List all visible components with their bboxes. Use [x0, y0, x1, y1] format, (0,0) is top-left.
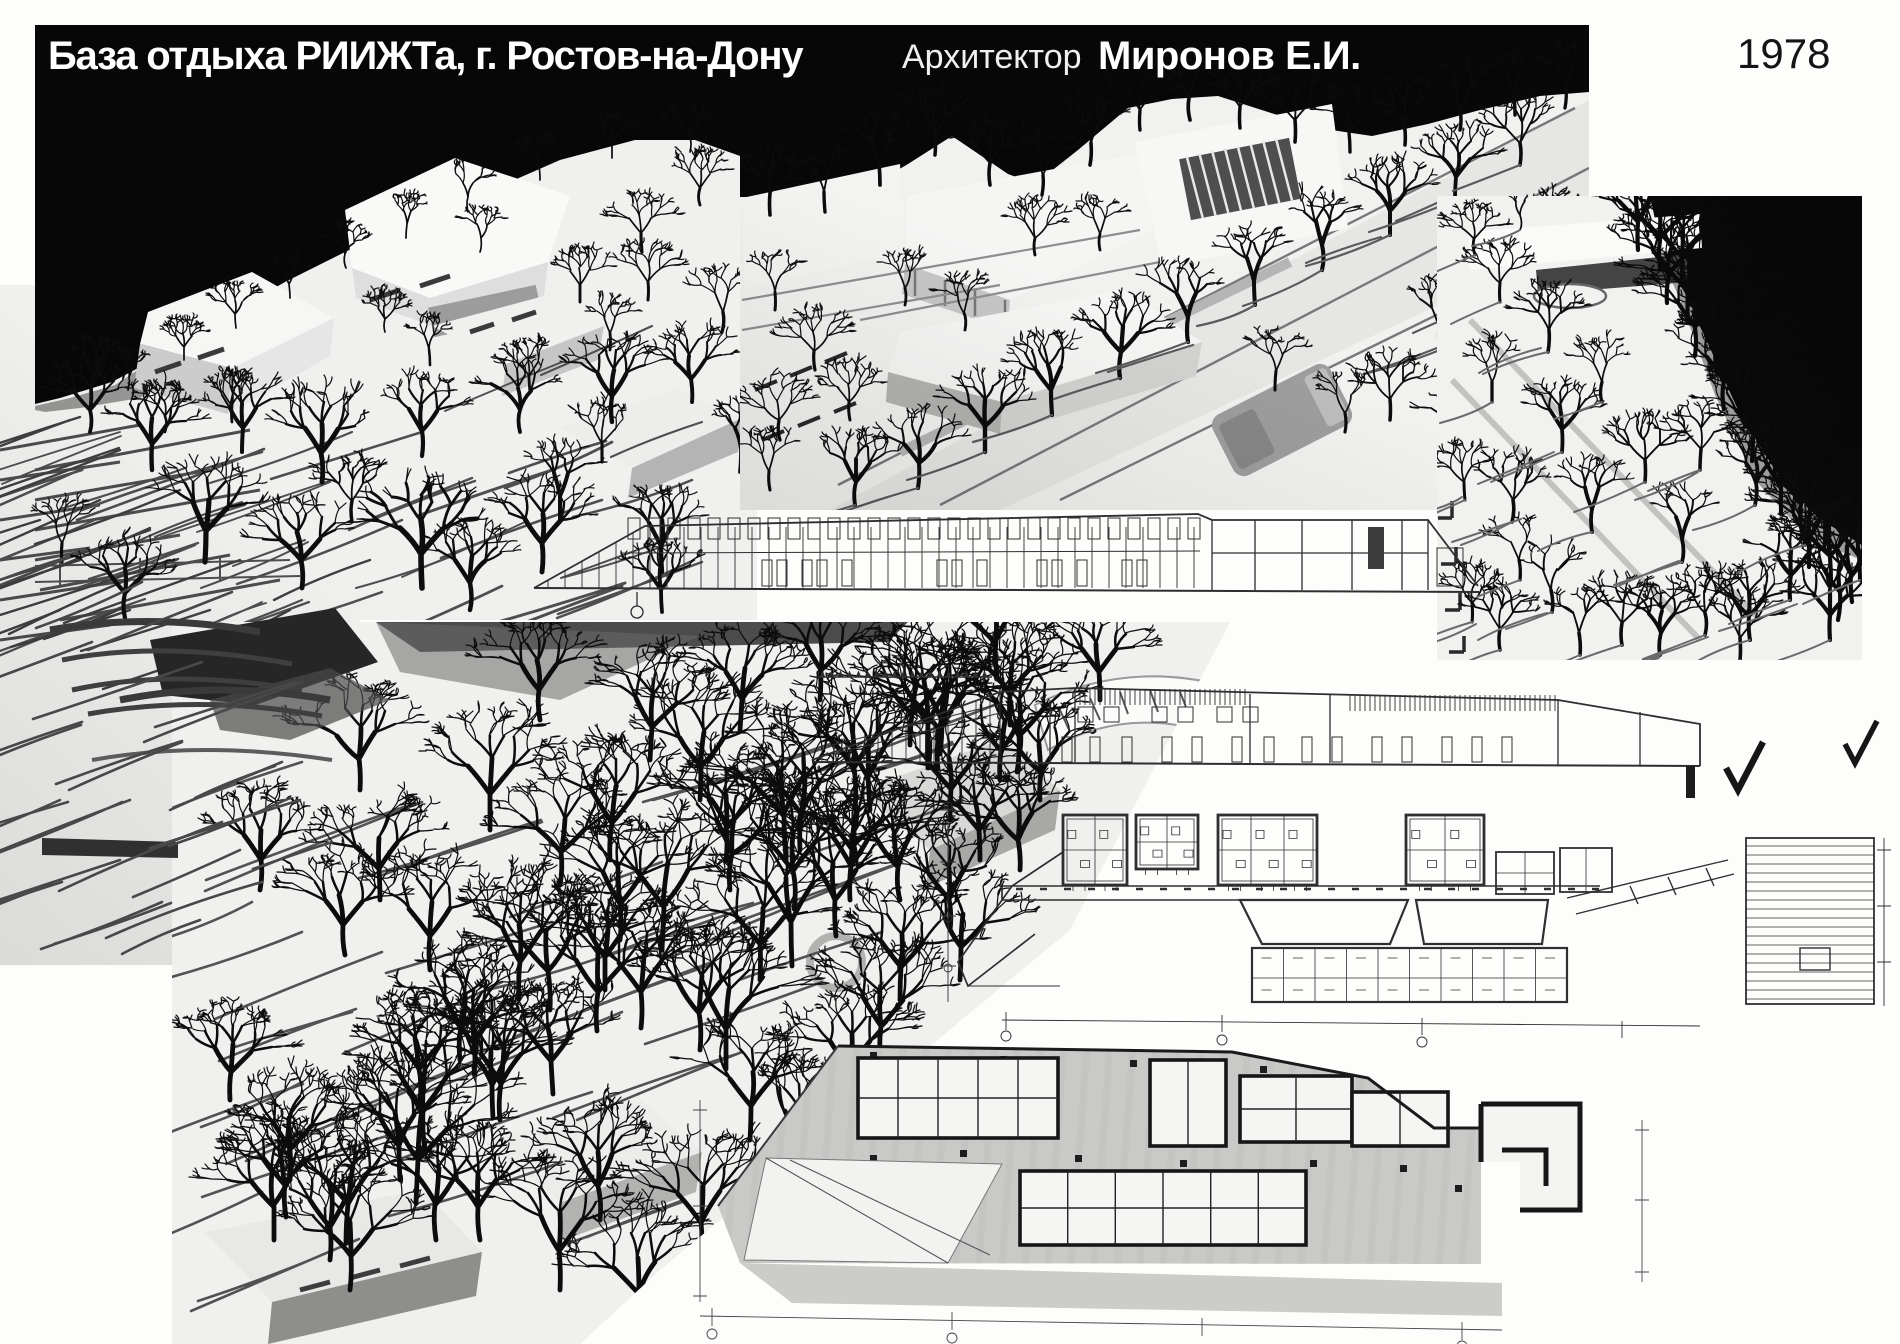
svg-text:1978: 1978	[1737, 30, 1830, 77]
svg-text:Миронов Е.И.: Миронов Е.И.	[1098, 34, 1361, 78]
svg-text:База отдыха РИИЖТа, г. Ростов-: База отдыха РИИЖТа, г. Ростов-на-Дону	[48, 34, 804, 78]
svg-text:Архитектор: Архитектор	[902, 38, 1082, 76]
